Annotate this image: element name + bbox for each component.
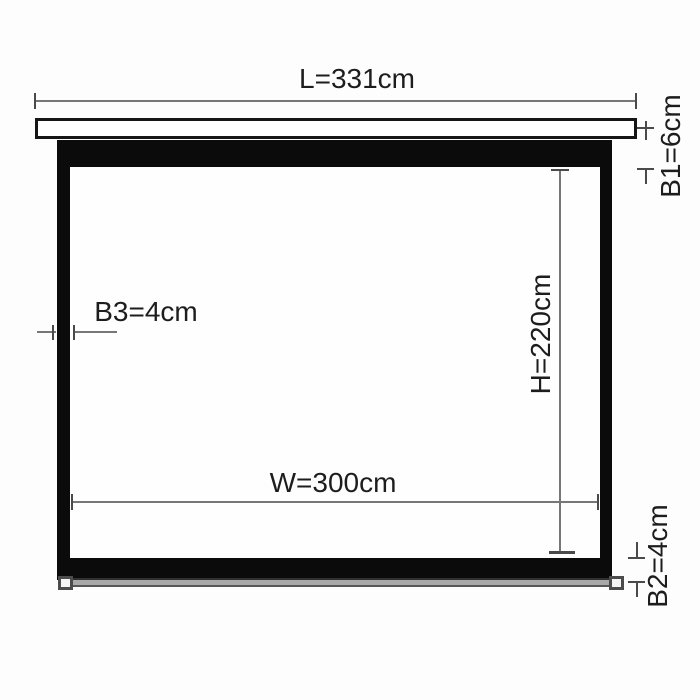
dim-w-tick-left [71,494,73,510]
dim-l-line [35,100,637,102]
dim-b1-stem-bottom [645,169,647,184]
dim-l-tick-right [635,93,637,109]
screen-casing [35,118,637,139]
dim-h-tick-bottom [549,551,575,554]
dim-b2-stem-bottom [636,582,638,597]
bottom-bar-end-cap-right [609,576,624,590]
dim-h-line [559,170,561,553]
bottom-weight-bar [62,578,620,587]
dim-h-tick-top [551,169,569,171]
bottom-bar-end-cap-left [58,576,73,590]
dim-h-label: H=220cm [527,274,555,395]
dim-w-tick-right [597,494,599,510]
dim-b2-label: B2=4cm [644,504,672,608]
viewing-area [70,167,600,558]
dim-b3-label: B3=4cm [94,298,198,326]
dim-b3-leader-right [75,331,117,333]
dim-w-label: W=300cm [270,469,397,497]
dim-l-tick-left [34,93,36,109]
dim-w-line [72,501,599,503]
screen-dimension-diagram: L=331cm B1=6cm B3=4cm H=220cm W=300cm B2… [0,0,700,700]
dim-b3-tick-left [52,325,54,340]
dim-b2-stem-top [636,542,638,558]
dim-b1-stem-top [645,121,647,140]
dim-b1-label: B1=6cm [657,94,685,198]
dim-l-label: L=331cm [299,65,415,93]
dim-b1-bar-top [637,127,654,129]
